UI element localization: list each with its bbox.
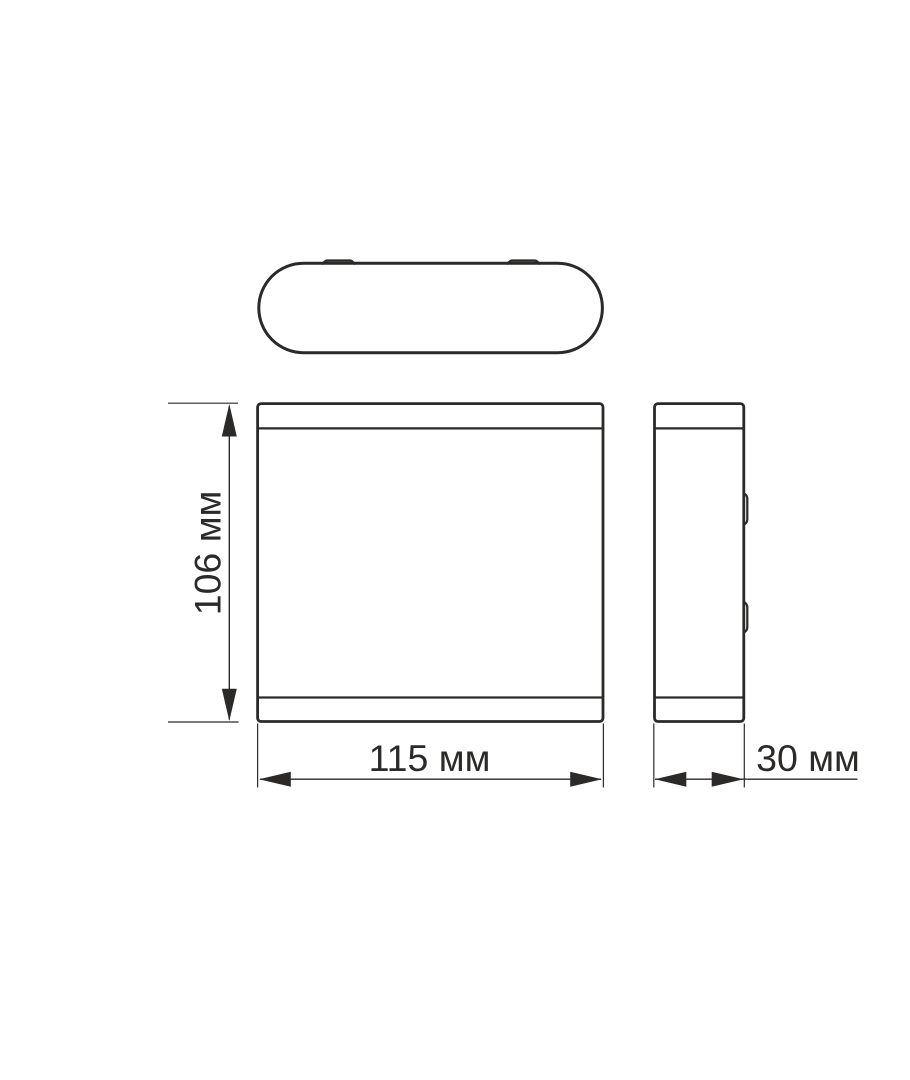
svg-text:106 мм: 106 мм xyxy=(187,491,229,616)
svg-text:115 мм: 115 мм xyxy=(369,737,491,779)
svg-text:30 мм: 30 мм xyxy=(756,737,860,779)
